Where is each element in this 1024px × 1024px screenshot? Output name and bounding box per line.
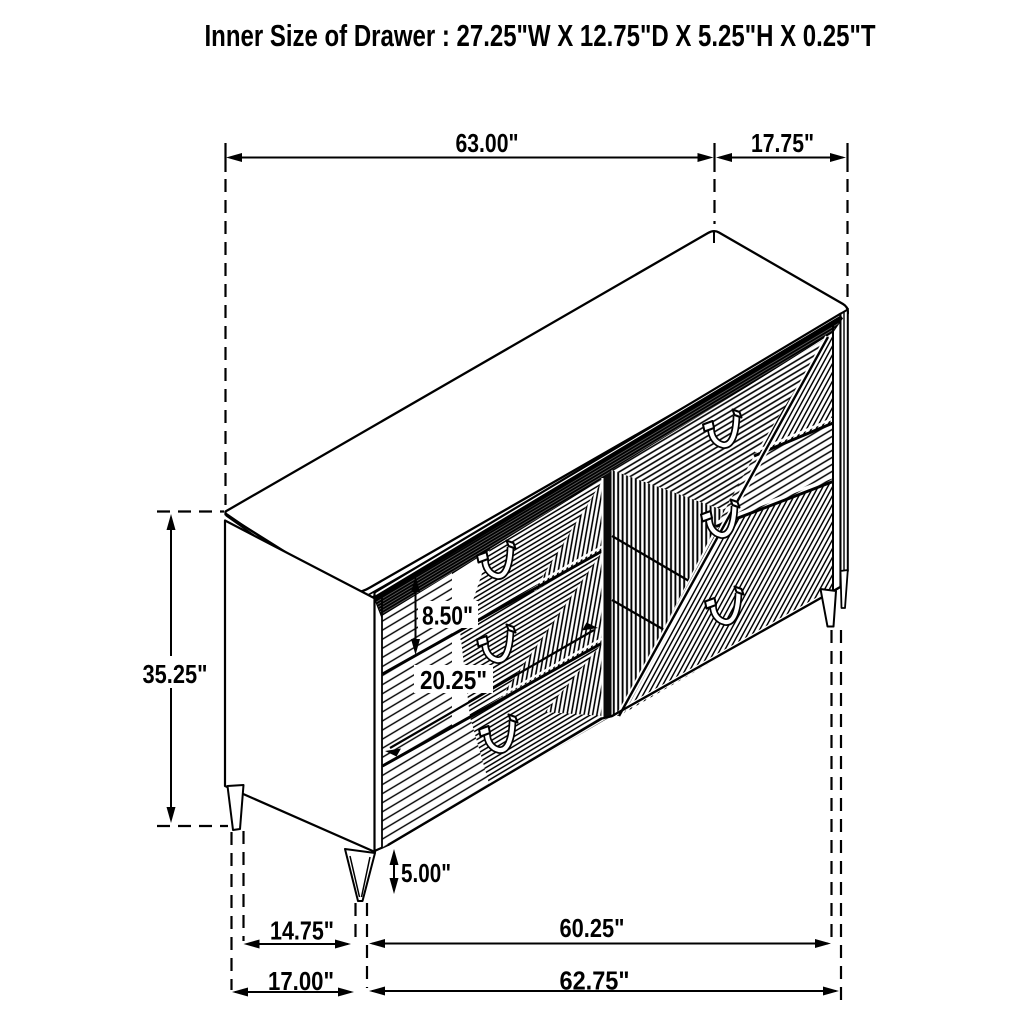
- svg-text:62.75": 62.75": [560, 966, 630, 996]
- svg-text:20.25": 20.25": [420, 665, 487, 695]
- svg-text:17.00": 17.00": [268, 966, 334, 996]
- svg-text:17.75": 17.75": [751, 128, 814, 158]
- svg-text:14.75": 14.75": [270, 916, 334, 946]
- svg-text:8.50": 8.50": [422, 601, 473, 631]
- svg-text:5.00": 5.00": [401, 858, 451, 888]
- svg-text:63.00": 63.00": [456, 128, 519, 158]
- svg-text:60.25": 60.25": [560, 913, 625, 943]
- svg-text:35.25": 35.25": [143, 659, 208, 689]
- svg-text:Inner Size of Drawer : 27.25"W: Inner Size of Drawer : 27.25"W X 12.75"D…: [205, 18, 876, 53]
